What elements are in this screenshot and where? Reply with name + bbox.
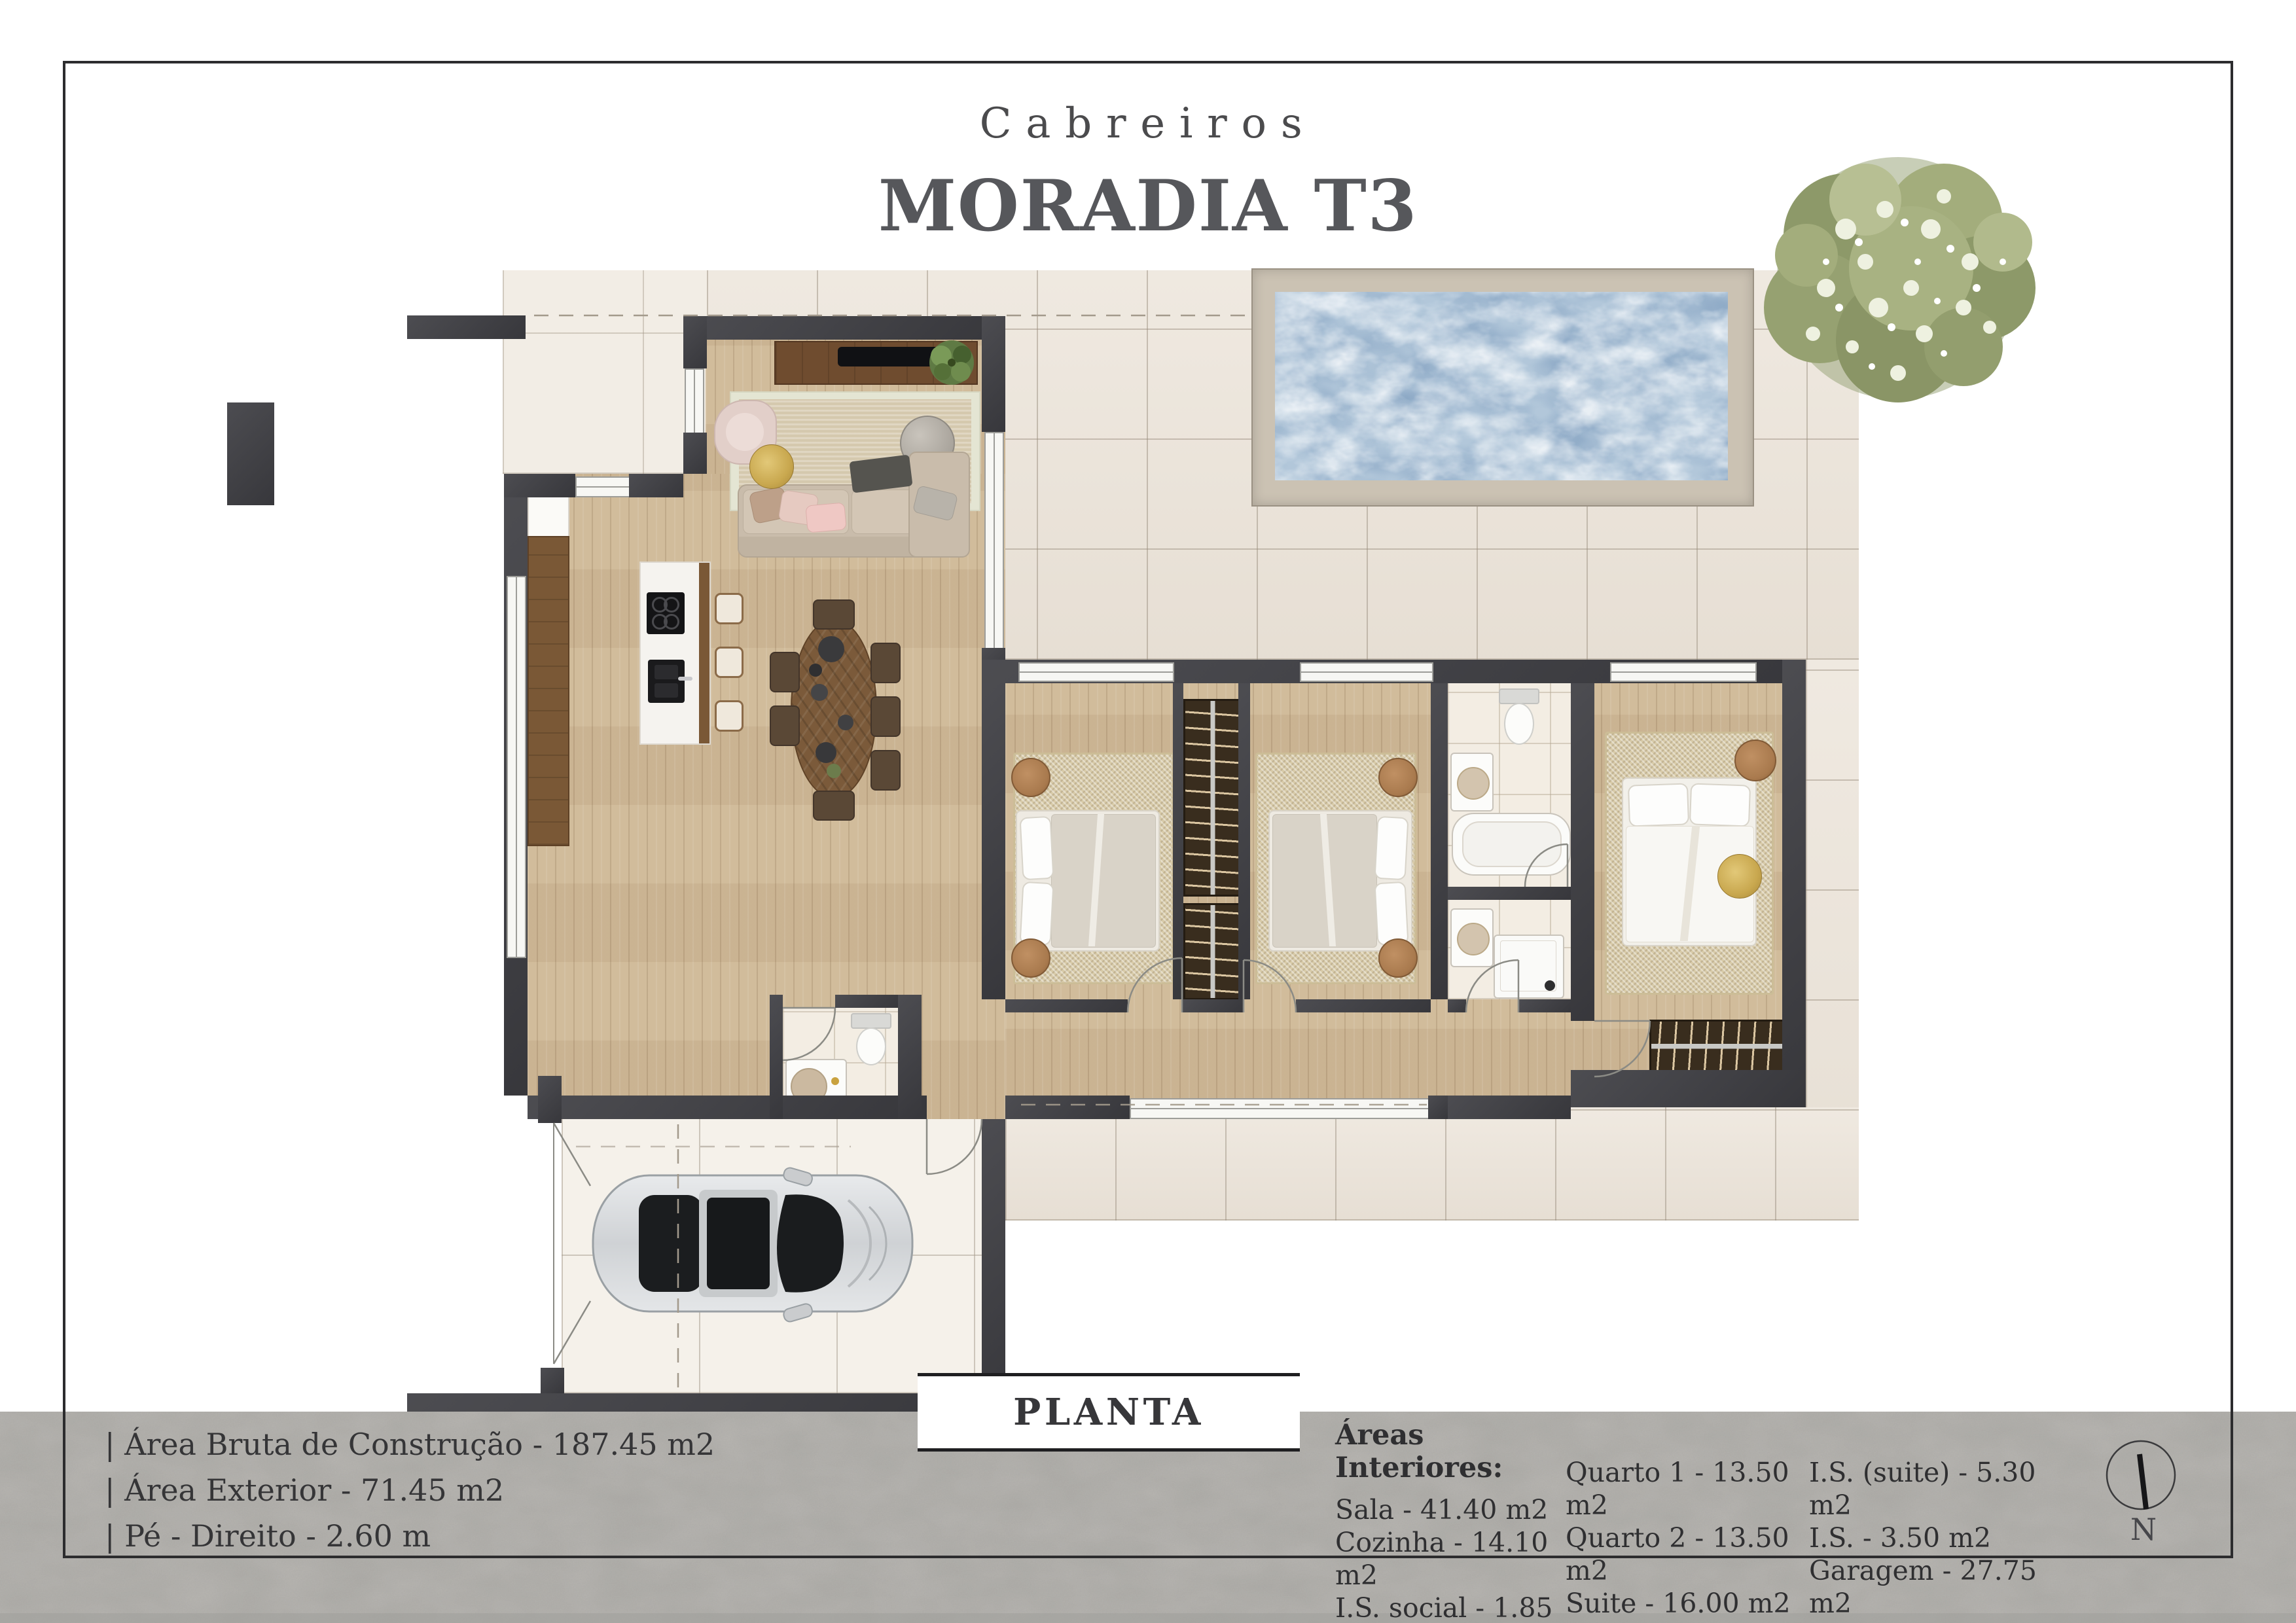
area-quarto2: Quarto 2 - 13.50 m2 [1566,1522,1808,1587]
area-cozinha: Cozinha - 14.10 m2 [1335,1526,1571,1592]
area-quarto1: Quarto 1 - 13.50 m2 [1566,1456,1808,1522]
areas-heading: Áreas Interiores: [1335,1419,1571,1484]
spec-gross-area: | Área Bruta de Construção - 187.45 m2 [105,1421,715,1467]
area-garagem: Garagem - 27.75 m2 [1809,1554,2084,1620]
interior-areas: Áreas Interiores: Sala - 41.40 m2 Cozinh… [1335,1419,1571,1623]
area-sala: Sala - 41.40 m2 [1335,1493,1571,1526]
area-is-suite: I.S. (suite) - 5.30 m2 [1809,1456,2084,1522]
compass-north-label: N [2098,1512,2189,1547]
compass-icon [2098,1437,2189,1516]
plan-label: PLANTA [1013,1391,1204,1434]
area-is: I.S. - 3.50 m2 [1809,1522,2084,1554]
interior-areas-col2: Quarto 1 - 13.50 m2 Quarto 2 - 13.50 m2 … [1566,1456,1808,1620]
spec-exterior-area: | Área Exterior - 71.45 m2 [105,1467,715,1513]
spec-ceiling-height: | Pé - Direito - 2.60 m [105,1513,715,1559]
north-compass: N [2098,1437,2189,1548]
interior-areas-col3: I.S. (suite) - 5.30 m2 I.S. - 3.50 m2 Ga… [1809,1456,2084,1620]
estate-name: Cabreiros [0,99,2296,148]
area-suite: Suite - 16.00 m2 [1566,1587,1808,1620]
page-frame-border [63,61,2233,1558]
page-title: MORADIA T3 [0,165,2296,247]
spec-list: | Área Bruta de Construção - 187.45 m2 |… [105,1421,715,1559]
floor-plan-page: Cabreiros MORADIA T3 [0,0,2296,1623]
area-is-social: I.S. social - 1.85 m2 [1335,1592,1571,1623]
plan-label-box: PLANTA [918,1373,1300,1452]
